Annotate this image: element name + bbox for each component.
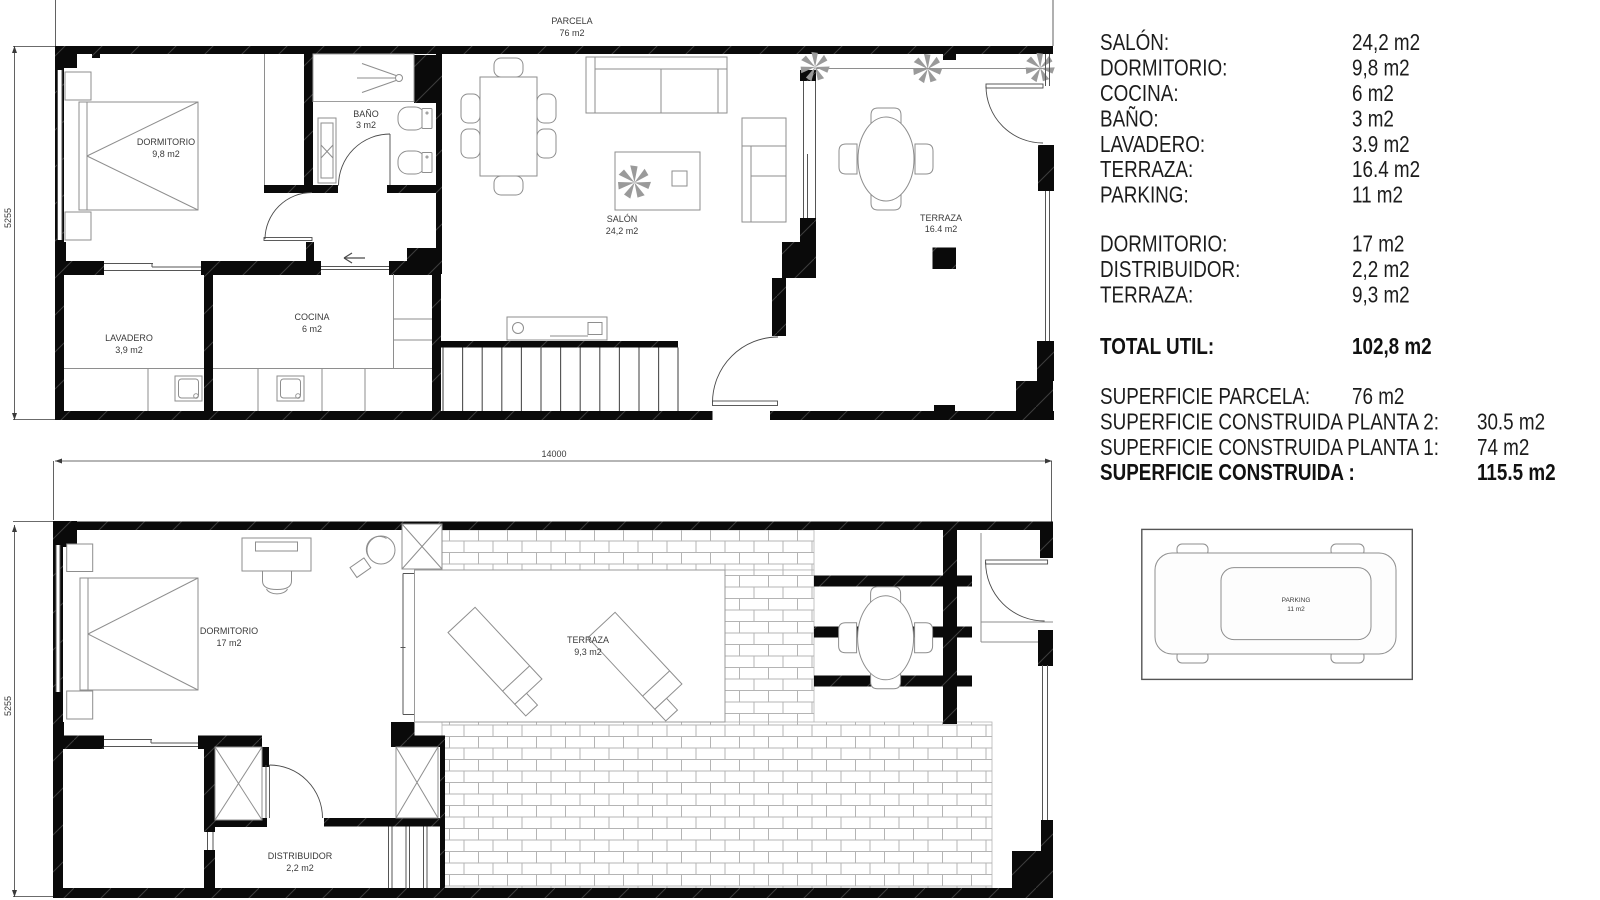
svg-text:115.5 m2: 115.5 m2 (1477, 460, 1556, 485)
svg-text:BAÑO:: BAÑO: (1100, 106, 1159, 132)
svg-text:3,9 m2: 3,9 m2 (115, 345, 143, 355)
svg-text:24,2 m2: 24,2 m2 (606, 226, 639, 236)
svg-text:SALÓN: SALÓN (607, 214, 638, 224)
svg-text:PARKING: PARKING (1282, 597, 1311, 604)
svg-text:3 m2: 3 m2 (356, 120, 376, 130)
svg-text:11 m2: 11 m2 (1352, 183, 1403, 208)
svg-text:9,3 m2: 9,3 m2 (1352, 283, 1410, 308)
svg-text:TOTAL UTIL:: TOTAL UTIL: (1100, 334, 1214, 359)
svg-text:DORMITORIO: DORMITORIO (137, 137, 195, 147)
svg-text:5255: 5255 (3, 696, 13, 716)
svg-text:SUPERFICIE CONSTRUIDA :: SUPERFICIE CONSTRUIDA : (1100, 460, 1355, 485)
svg-text:PARCELA: PARCELA (551, 16, 592, 26)
svg-text:102,8 m2: 102,8 m2 (1352, 334, 1432, 359)
svg-text:17 m2: 17 m2 (1352, 232, 1404, 257)
svg-text:3 m2: 3 m2 (1352, 107, 1394, 132)
svg-text:COCINA: COCINA (294, 312, 329, 322)
svg-text:14000: 14000 (541, 449, 566, 459)
svg-text:SUPERFICIE CONSTRUIDA PLANTA 1: SUPERFICIE CONSTRUIDA PLANTA 1: (1100, 435, 1439, 460)
svg-text:BAÑO: BAÑO (353, 109, 379, 119)
svg-text:COCINA:: COCINA: (1100, 81, 1179, 106)
svg-text:3.9 m2: 3.9 m2 (1352, 132, 1410, 157)
svg-text:DISTRIBUIDOR:: DISTRIBUIDOR: (1100, 257, 1240, 282)
svg-text:6 m2: 6 m2 (302, 324, 322, 334)
svg-text:2,2 m2: 2,2 m2 (1352, 257, 1410, 282)
svg-text:DORMITORIO:: DORMITORIO: (1100, 56, 1227, 81)
svg-text:9,8 m2: 9,8 m2 (152, 149, 180, 159)
svg-text:76 m2: 76 m2 (559, 28, 584, 38)
svg-text:6 m2: 6 m2 (1352, 81, 1394, 106)
svg-text:76 m2: 76 m2 (1352, 384, 1404, 409)
svg-text:TERRAZA:: TERRAZA: (1100, 158, 1193, 183)
svg-text:11 m2: 11 m2 (1287, 606, 1305, 613)
svg-text:TERRAZA: TERRAZA (567, 635, 609, 645)
svg-text:5255: 5255 (3, 208, 13, 228)
svg-text:9,3 m2: 9,3 m2 (574, 647, 602, 657)
svg-text:LAVADERO: LAVADERO (105, 333, 153, 343)
svg-text:17 m2: 17 m2 (216, 638, 241, 648)
svg-text:LAVADERO:: LAVADERO: (1100, 132, 1205, 157)
svg-text:24,2 m2: 24,2 m2 (1352, 31, 1420, 56)
svg-text:16.4 m2: 16.4 m2 (1352, 158, 1420, 183)
svg-text:PARKING:: PARKING: (1100, 183, 1189, 208)
svg-text:DORMITORIO:: DORMITORIO: (1100, 232, 1227, 257)
svg-text:SALÓN:: SALÓN: (1100, 31, 1169, 56)
svg-text:TERRAZA:: TERRAZA: (1100, 283, 1193, 308)
svg-text:2,2 m2: 2,2 m2 (286, 863, 314, 873)
svg-text:74 m2: 74 m2 (1477, 435, 1529, 460)
svg-text:30.5 m2: 30.5 m2 (1477, 410, 1545, 435)
svg-text:9,8 m2: 9,8 m2 (1352, 56, 1410, 81)
svg-text:16.4 m2: 16.4 m2 (925, 224, 958, 234)
svg-text:DISTRIBUIDOR: DISTRIBUIDOR (268, 851, 333, 861)
svg-text:DORMITORIO: DORMITORIO (200, 626, 258, 636)
svg-text:SUPERFICIE PARCELA:: SUPERFICIE PARCELA: (1100, 384, 1310, 409)
svg-text:SUPERFICIE CONSTRUIDA PLANTA 2: SUPERFICIE CONSTRUIDA PLANTA 2: (1100, 410, 1439, 435)
svg-text:TERRAZA: TERRAZA (920, 213, 962, 223)
